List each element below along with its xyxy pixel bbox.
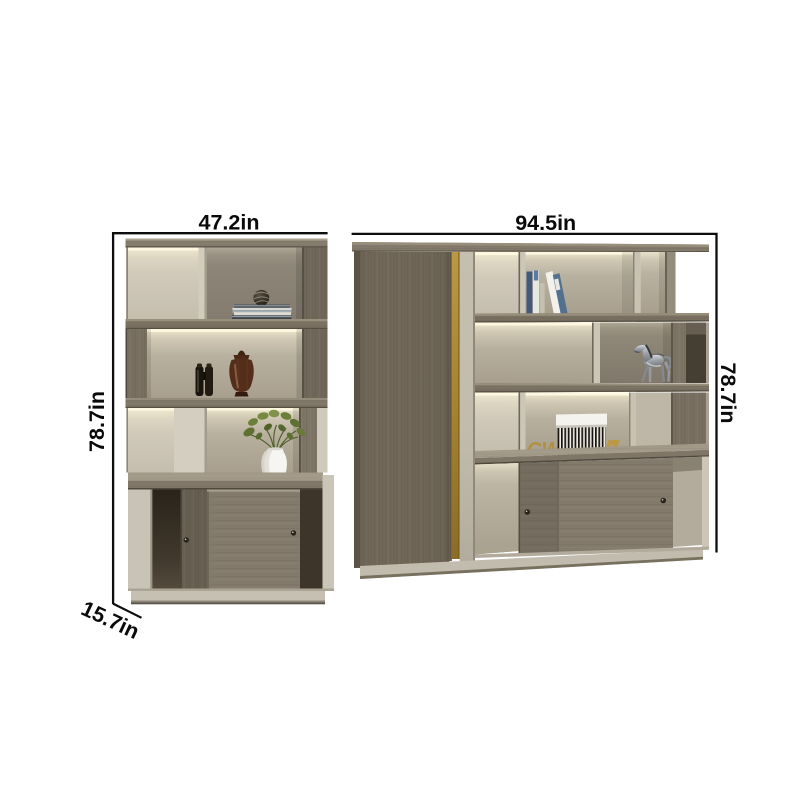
svg-text:78.7in: 78.7in <box>716 363 740 424</box>
svg-text:78.7in: 78.7in <box>85 391 109 452</box>
svg-text:47.2in: 47.2in <box>199 211 260 235</box>
svg-text:94.5in: 94.5in <box>515 211 576 235</box>
